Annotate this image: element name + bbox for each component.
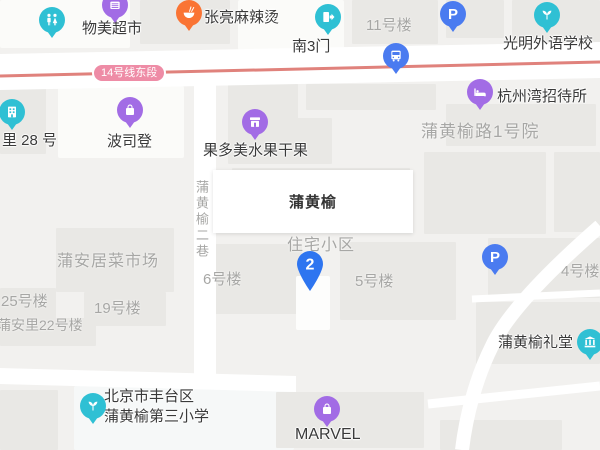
restroom-icon xyxy=(44,12,60,28)
popup-title: 蒲黄榆 xyxy=(289,191,337,212)
building-block xyxy=(440,420,562,450)
parking-letter: P xyxy=(490,249,500,266)
result-marker-2[interactable]: 2 xyxy=(295,250,325,292)
parking-pin-right[interactable]: P xyxy=(482,244,508,270)
school-label-line1: 北京市丰台区 xyxy=(104,387,209,407)
poi-label-bosideng[interactable]: 波司登 xyxy=(107,130,152,151)
building-icon xyxy=(4,104,20,120)
supermarket-icon xyxy=(107,0,123,13)
area-label-market: 蒲安居菜市场 xyxy=(57,247,159,271)
sprout-icon xyxy=(85,398,101,414)
building-block xyxy=(554,152,600,232)
parking-letter: P xyxy=(448,6,458,23)
gate-pin[interactable] xyxy=(315,4,341,30)
marvel-pin[interactable] xyxy=(314,396,340,422)
area-label-building11: 11号楼 xyxy=(366,14,412,35)
school-pin-top[interactable] xyxy=(534,2,560,28)
building-block xyxy=(306,84,436,110)
area-label-puanli22: 蒲安里22号楼 xyxy=(0,315,83,335)
area-label-building25: 25号楼 xyxy=(1,290,48,311)
building-pin-li28[interactable] xyxy=(0,99,25,125)
metro-line-badge: 14号线东段 xyxy=(92,63,166,83)
exit-gate-icon xyxy=(320,9,336,25)
poi-label-zhangliang[interactable]: 张亮麻辣烫 xyxy=(204,6,279,27)
building-block xyxy=(424,152,546,234)
school-label-line2: 蒲黄榆第三小学 xyxy=(104,407,209,427)
bus-stop-pin[interactable] xyxy=(383,43,409,69)
hostel-pin[interactable] xyxy=(467,79,493,105)
noodle-restaurant-pin[interactable] xyxy=(176,0,202,26)
area-label-yard1: 蒲黄榆路1号院 xyxy=(421,117,539,142)
parking-pin-top[interactable]: P xyxy=(440,1,466,27)
map-canvas[interactable]: 14号线东段 11号楼 蒲黄榆路1号院 住宅小区 蒲安居菜市场 6号楼 5号楼 … xyxy=(0,0,600,450)
noodle-bowl-icon xyxy=(181,5,197,21)
area-label-building5: 5号楼 xyxy=(355,270,393,291)
school-pin-bottom[interactable] xyxy=(80,393,106,419)
poi-label-hangzhouwan-hostel[interactable]: 杭州湾招待所 xyxy=(497,85,587,106)
hall-pin[interactable] xyxy=(577,329,600,355)
area-label-building19: 19号楼 xyxy=(94,297,141,318)
area-label-building4: 4号楼 xyxy=(561,260,599,281)
location-popup[interactable]: 蒲黄榆 xyxy=(213,170,413,233)
storefront-icon xyxy=(247,114,263,130)
street-label-lane: 蒲黄榆二巷 xyxy=(192,180,211,260)
fruit-store-pin[interactable] xyxy=(242,109,268,135)
bed-icon xyxy=(472,84,488,100)
auditorium-icon xyxy=(582,334,598,350)
shopping-bag-icon xyxy=(122,102,138,118)
marker-number: 2 xyxy=(306,257,315,274)
area-label-building6: 6号楼 xyxy=(203,268,241,289)
shopping-bag-icon xyxy=(319,401,335,417)
poi-label-third-primary-school[interactable]: 北京市丰台区 蒲黄榆第三小学 xyxy=(104,387,209,427)
bosideng-pin[interactable] xyxy=(117,97,143,123)
metro-line-14 xyxy=(0,62,600,76)
poi-label-hall[interactable]: 蒲黄榆礼堂 xyxy=(498,331,573,352)
diagonal-road xyxy=(428,386,600,404)
bus-icon xyxy=(388,48,404,64)
restroom-pin[interactable] xyxy=(39,7,65,33)
sprout-icon xyxy=(539,7,555,23)
building-block xyxy=(0,390,58,450)
